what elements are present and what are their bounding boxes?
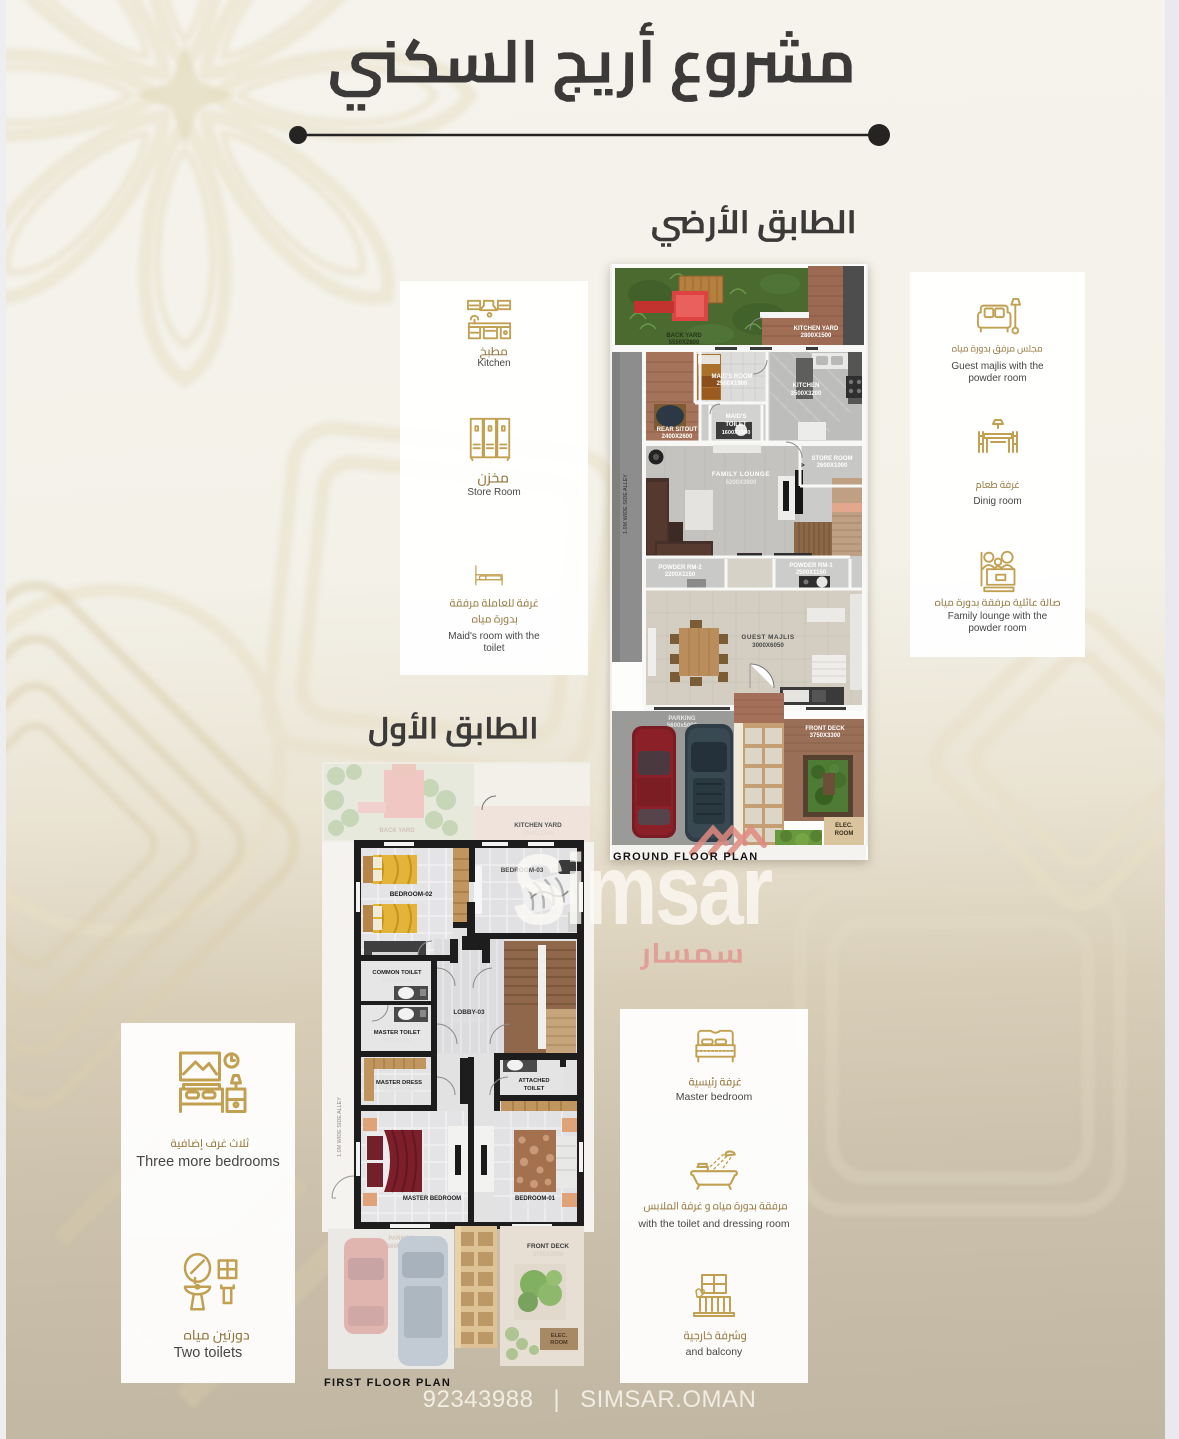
svg-text:BEDROOM-01: BEDROOM-01 [515,1196,556,1202]
svg-text:3750X3300: 3750X3300 [810,733,841,739]
svg-text:2300X1450: 2300X1450 [382,1038,413,1044]
svg-text:2400X2600: 2400X2600 [662,434,693,440]
svg-text:5200X3900: 5200X3900 [726,480,757,486]
svg-text:KITCHEN: KITCHEN [793,383,820,389]
svg-text:TOILET: TOILET [725,422,747,428]
svg-text:2300X1800: 2300X1800 [384,1088,415,1094]
svg-text:FRONT DECK: FRONT DECK [805,726,845,732]
svg-text:FRONT DECK: FRONT DECK [527,1243,569,1250]
svg-text:LOBBY-03: LOBBY-03 [453,1009,485,1016]
svg-text:2500X1150: 2500X1150 [796,570,827,576]
svg-text:MAID'S: MAID'S [726,414,747,420]
svg-text:2500X1900: 2500X1900 [717,381,748,387]
svg-text:3500X3350: 3500X3350 [396,900,427,906]
svg-text:3500X4700: 3500X4700 [520,1204,551,1210]
svg-text:3000X6050: 3000X6050 [752,642,784,649]
svg-text:MASTER TOILET: MASTER TOILET [374,1030,421,1036]
svg-text:BACK YARD: BACK YARD [666,333,702,339]
svg-text:MASTER DRESS: MASTER DRESS [376,1080,422,1086]
svg-text:ROOM: ROOM [550,1340,568,1346]
svg-text:MASTER BEDROOM: MASTER BEDROOM [403,1196,461,1202]
svg-text:ELEC.: ELEC. [835,823,853,829]
svg-text:PARKING: PARKING [668,716,696,722]
svg-text:2600X1000: 2600X1000 [817,463,848,469]
svg-text:1600X1500: 1600X1500 [722,430,751,436]
svg-text:1.0M WIDE SIDE ALLEY: 1.0M WIDE SIDE ALLEY [337,1097,343,1157]
svg-text:ROOM: ROOM [835,831,854,837]
svg-text:TOILET: TOILET [524,1086,545,1092]
svg-text:REAR SITOUT: REAR SITOUT [657,427,698,433]
svg-text:POWDER RM-1: POWDER RM-1 [789,563,833,569]
svg-text:ATTACHED: ATTACHED [518,1078,549,1084]
svg-text:3500X4500: 3500X4500 [417,1204,448,1210]
svg-text:ELEC.: ELEC. [551,1333,568,1339]
svg-text:FAMILY LOUNGE: FAMILY LOUNGE [712,471,771,478]
svg-text:GUEST MAJLIS: GUEST MAJLIS [741,634,794,641]
svg-text:KITCHEN YARD: KITCHEN YARD [794,326,839,332]
svg-text:BEDROOM-02: BEDROOM-02 [390,891,433,898]
svg-text:3500X3200: 3500X3200 [791,391,822,397]
svg-text:2200X1150: 2200X1150 [665,572,696,578]
svg-text:2800X1500: 2800X1500 [801,333,832,339]
svg-text:MAID'S ROOM: MAID'S ROOM [711,374,752,380]
svg-text:2500X3150: 2500X3150 [454,1018,485,1024]
svg-text:1.0M WIDE SIDE ALLEY: 1.0M WIDE SIDE ALLEY [623,474,629,534]
svg-text:2300X1500: 2300X1500 [382,978,413,984]
svg-text:COMMON TOILET: COMMON TOILET [372,970,422,976]
svg-text:POWDER RM-2: POWDER RM-2 [658,565,702,571]
svg-text:3750X3300: 3750X3300 [533,1252,564,1258]
svg-text:STORE ROOM: STORE ROOM [812,456,853,462]
